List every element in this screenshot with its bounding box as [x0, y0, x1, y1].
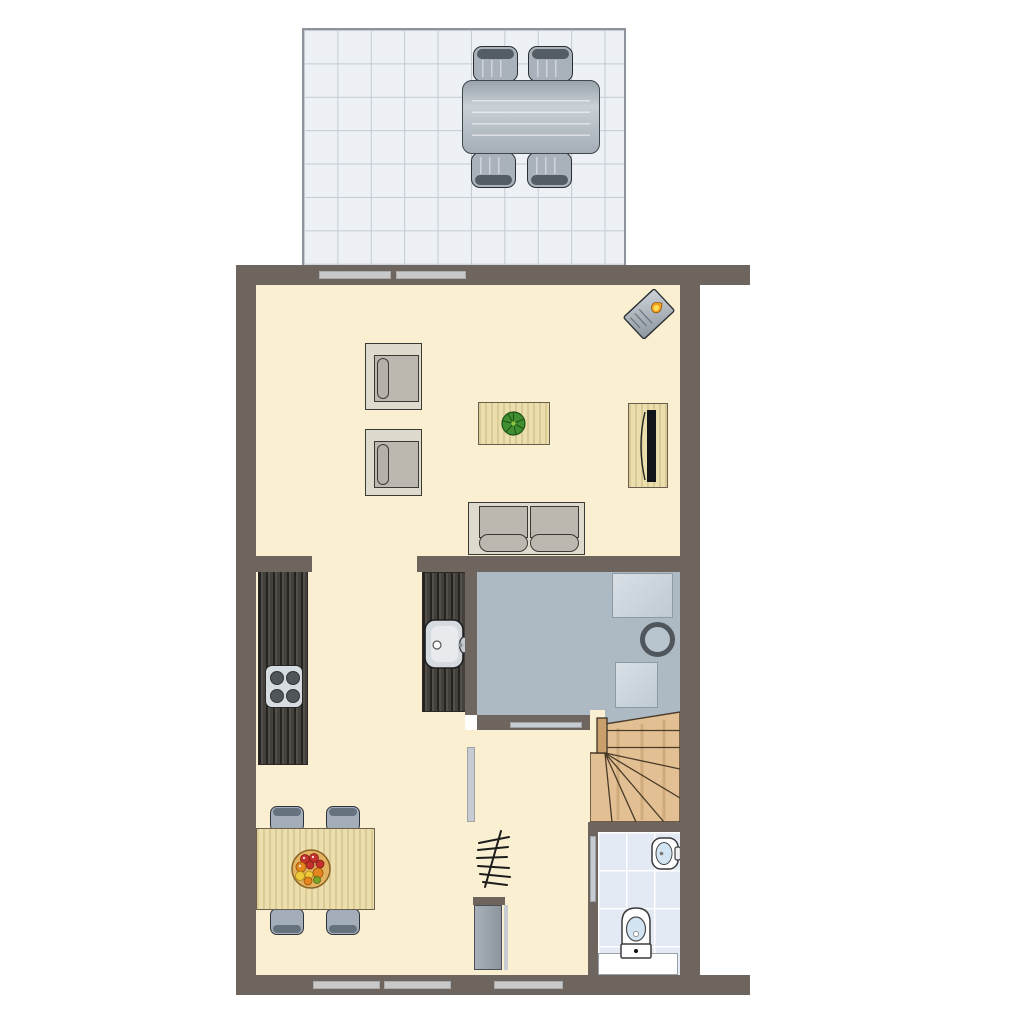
newel-post: [597, 718, 607, 753]
dining-chair: [326, 908, 360, 935]
chair-seat-stripes: [536, 157, 563, 174]
armchair-cushion: [377, 444, 389, 485]
floor-plan: [0, 0, 1024, 1024]
chair-back: [273, 808, 301, 816]
sofa-seat-cushion: [530, 534, 579, 552]
wall-kitchen-east: [465, 570, 477, 715]
staircase: [590, 710, 680, 822]
coat-rack: [476, 828, 516, 890]
chair-back: [329, 808, 357, 816]
terrace-chair: [528, 46, 573, 82]
terrace-chair: [471, 152, 516, 188]
burner: [286, 671, 300, 685]
fruit-bowl: [290, 848, 332, 890]
sofa-seat-cushion: [479, 534, 528, 552]
burner: [270, 671, 284, 685]
window-south: [313, 981, 380, 989]
wood-stove: [616, 282, 682, 346]
drain: [433, 641, 441, 649]
chair-seat-stripes: [482, 60, 509, 77]
front-door-frame: [504, 905, 508, 970]
sliding-door-bathroom: [590, 836, 596, 902]
sliding-door-utility: [510, 722, 582, 728]
chair-back: [532, 49, 569, 59]
armchair: [365, 429, 422, 496]
toilet-bowl: [627, 917, 646, 941]
sliding-door-dining-hall: [467, 747, 475, 822]
washbasin: [652, 838, 680, 869]
tv-panel: [647, 410, 656, 482]
front-door-leaf: [474, 905, 502, 970]
armchair: [365, 343, 422, 410]
dining-chair: [270, 908, 304, 935]
terrace-door-panel: [396, 271, 466, 279]
terrace-chair: [527, 152, 572, 188]
bathroom-fixtures: [598, 832, 680, 962]
terrace-chair: [473, 46, 518, 82]
appliance-washer: [612, 573, 673, 618]
cooktop: [265, 665, 303, 708]
potted-plant: [500, 410, 527, 437]
chair-seat-stripes: [537, 60, 564, 77]
chair-back: [475, 175, 512, 185]
window-south: [494, 981, 563, 989]
boiler: [640, 622, 675, 657]
tv-screen-curve: [641, 412, 645, 480]
wall-top: [236, 265, 750, 285]
wall-living-south-right: [417, 556, 700, 572]
tv: [628, 403, 668, 488]
chair-back: [273, 925, 301, 933]
wall-living-south-left: [236, 556, 312, 572]
terrace-table: [462, 80, 600, 154]
toilet: [621, 908, 651, 958]
plant-center: [511, 421, 515, 425]
chair-back: [329, 925, 357, 933]
kitchen-sink: [424, 618, 470, 672]
sofa: [468, 502, 585, 555]
terrace-door-panel: [319, 271, 391, 279]
wall-entry-stub: [473, 897, 505, 905]
appliance-dryer: [615, 662, 658, 708]
stove-body: [623, 289, 674, 340]
wall-stairs-south: [588, 822, 680, 832]
burner: [286, 689, 300, 703]
chair-back: [531, 175, 568, 185]
chair-seat-stripes: [480, 157, 507, 174]
armchair-cushion: [377, 358, 389, 399]
burner: [270, 689, 284, 703]
wall-left: [236, 265, 256, 995]
faucet-base: [459, 643, 463, 647]
window-south: [384, 981, 451, 989]
chair-back: [477, 49, 514, 59]
table-slats: [472, 90, 590, 144]
coat-rack-bars: [477, 837, 510, 885]
wall-right: [680, 265, 700, 975]
